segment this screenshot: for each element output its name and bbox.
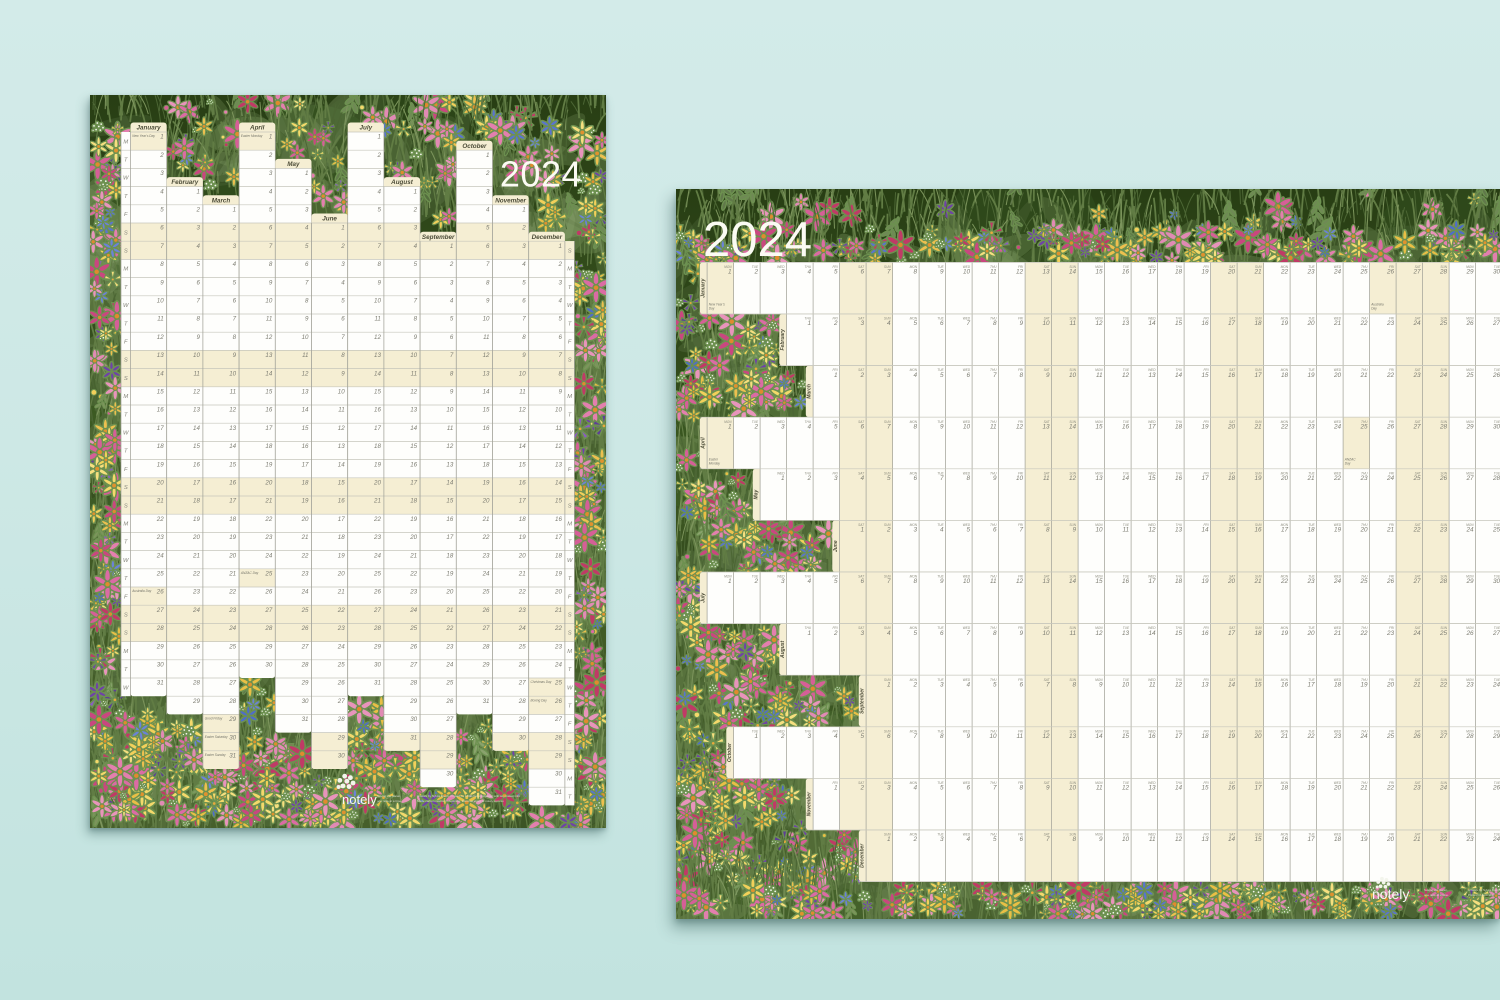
svg-text:24: 24 [482, 571, 490, 578]
svg-text:S: S [124, 613, 128, 619]
svg-text:17: 17 [1281, 527, 1289, 534]
svg-text:16: 16 [1228, 372, 1236, 379]
svg-text:10: 10 [446, 407, 453, 414]
svg-text:Saving the planet,: Saving the planet, [1424, 888, 1448, 892]
svg-text:W: W [567, 558, 573, 564]
svg-text:6: 6 [887, 733, 891, 740]
svg-text:April: April [701, 437, 707, 450]
svg-text:24: 24 [1439, 372, 1448, 379]
svg-text:3: 3 [887, 785, 891, 792]
svg-text:T: T [568, 285, 572, 291]
svg-text:17: 17 [1254, 785, 1262, 792]
svg-text:21: 21 [192, 552, 200, 559]
svg-text:W: W [123, 303, 129, 309]
svg-text:13: 13 [302, 389, 309, 396]
svg-text:11: 11 [266, 316, 272, 323]
svg-text:12: 12 [483, 352, 490, 359]
svg-text:7: 7 [305, 279, 309, 286]
svg-text:2: 2 [860, 372, 865, 379]
svg-text:1: 1 [341, 225, 344, 232]
svg-text:15: 15 [1095, 578, 1103, 585]
svg-text:16: 16 [193, 461, 200, 468]
svg-text:3: 3 [522, 243, 526, 250]
svg-text:20: 20 [1386, 681, 1395, 688]
svg-text:16: 16 [1122, 269, 1130, 276]
svg-text:2: 2 [340, 243, 345, 250]
svg-text:27: 27 [192, 662, 200, 669]
svg-text:M: M [123, 394, 128, 400]
svg-text:30: 30 [555, 771, 562, 778]
svg-text:4: 4 [967, 836, 971, 843]
svg-text:5: 5 [887, 475, 891, 482]
svg-text:6: 6 [305, 261, 309, 268]
svg-text:26: 26 [228, 662, 236, 669]
svg-text:8: 8 [341, 352, 345, 359]
svg-text:16: 16 [1148, 733, 1156, 740]
svg-text:9: 9 [1020, 320, 1024, 327]
svg-text:S: S [124, 249, 128, 255]
svg-text:15: 15 [410, 443, 417, 450]
svg-text:18: 18 [519, 516, 526, 523]
svg-text:21: 21 [1253, 423, 1262, 430]
svg-text:27: 27 [301, 643, 309, 650]
svg-text:11: 11 [990, 423, 997, 430]
svg-text:8: 8 [914, 269, 918, 276]
svg-text:10: 10 [338, 389, 345, 396]
svg-text:31: 31 [157, 680, 164, 687]
svg-text:7: 7 [887, 269, 891, 276]
svg-text:6: 6 [522, 298, 526, 305]
svg-text:26: 26 [1439, 475, 1448, 482]
svg-text:21: 21 [1253, 269, 1262, 276]
svg-text:2: 2 [485, 170, 490, 177]
svg-text:28: 28 [1439, 269, 1448, 276]
svg-text:2: 2 [913, 681, 918, 688]
svg-text:25: 25 [1412, 475, 1421, 482]
svg-text:5: 5 [486, 225, 490, 232]
svg-text:25: 25 [554, 680, 562, 687]
svg-text:22: 22 [554, 625, 562, 632]
svg-text:23: 23 [301, 571, 309, 578]
svg-text:5: 5 [414, 261, 418, 268]
svg-text:1: 1 [808, 320, 812, 327]
svg-text:23: 23 [1386, 630, 1395, 637]
svg-text:F: F [568, 340, 572, 346]
svg-text:S: S [124, 376, 128, 382]
svg-text:18: 18 [1334, 836, 1342, 843]
svg-text:19: 19 [338, 552, 345, 559]
svg-text:26: 26 [445, 698, 453, 705]
svg-text:16: 16 [302, 443, 309, 450]
svg-text:13: 13 [193, 407, 200, 414]
svg-text:11: 11 [1149, 681, 1156, 688]
svg-text:14: 14 [1228, 836, 1236, 843]
svg-text:7: 7 [967, 320, 971, 327]
svg-text:11: 11 [1016, 733, 1023, 740]
svg-text:7: 7 [196, 298, 200, 305]
svg-text:13: 13 [1201, 681, 1209, 688]
svg-text:20: 20 [409, 534, 417, 541]
svg-text:5: 5 [269, 207, 273, 214]
svg-text:12: 12 [555, 443, 562, 450]
svg-text:W: W [567, 685, 573, 691]
svg-text:18: 18 [1175, 578, 1183, 585]
svg-text:23: 23 [554, 643, 562, 650]
svg-text:26: 26 [337, 680, 345, 687]
svg-text:11: 11 [990, 578, 997, 585]
svg-text:1: 1 [808, 630, 812, 637]
svg-text:16: 16 [374, 407, 381, 414]
svg-text:S: S [568, 613, 572, 619]
svg-text:25: 25 [1439, 630, 1448, 637]
svg-text:August: August [780, 640, 786, 659]
svg-text:1: 1 [558, 243, 561, 250]
svg-text:27: 27 [156, 607, 164, 614]
svg-text:20: 20 [1333, 372, 1342, 379]
svg-text:11: 11 [338, 407, 344, 414]
svg-text:15: 15 [265, 389, 272, 396]
svg-text:15: 15 [302, 425, 309, 432]
svg-text:24: 24 [1412, 320, 1421, 327]
svg-text:4: 4 [887, 320, 891, 327]
svg-text:Artwork by Sylvia Booth. Print: Artwork by Sylvia Booth. Printed on 100%… [417, 794, 521, 798]
svg-text:9: 9 [196, 334, 200, 341]
svg-text:29: 29 [1465, 578, 1474, 585]
svg-text:27: 27 [1465, 475, 1474, 482]
svg-text:15: 15 [1201, 785, 1209, 792]
svg-text:9: 9 [1020, 630, 1024, 637]
svg-text:12: 12 [1175, 681, 1183, 688]
svg-text:23: 23 [1306, 578, 1315, 585]
svg-text:T: T [124, 449, 128, 455]
svg-text:18: 18 [338, 534, 345, 541]
svg-text:20: 20 [1227, 578, 1236, 585]
svg-text:1: 1 [233, 207, 236, 214]
svg-text:18: 18 [1307, 527, 1315, 534]
svg-text:8: 8 [1020, 372, 1024, 379]
svg-text:18: 18 [1281, 785, 1289, 792]
svg-text:18: 18 [1254, 630, 1262, 637]
svg-text:21: 21 [1412, 681, 1421, 688]
svg-text:25: 25 [1465, 785, 1474, 792]
svg-text:M: M [123, 267, 128, 273]
svg-text:9: 9 [940, 269, 944, 276]
svg-text:1: 1 [834, 372, 838, 379]
svg-text:29: 29 [264, 643, 272, 650]
svg-text:10: 10 [963, 423, 971, 430]
svg-text:25: 25 [1465, 372, 1474, 379]
svg-text:11: 11 [1096, 372, 1103, 379]
svg-text:2: 2 [754, 578, 759, 585]
svg-text:3: 3 [486, 188, 490, 195]
svg-text:5: 5 [196, 261, 200, 268]
svg-text:5: 5 [993, 836, 997, 843]
svg-text:24: 24 [192, 607, 200, 614]
svg-text:28: 28 [482, 643, 490, 650]
svg-text:W: W [567, 431, 573, 437]
svg-text:8: 8 [1020, 785, 1024, 792]
svg-text:3: 3 [781, 269, 785, 276]
svg-text:6: 6 [558, 334, 562, 341]
svg-text:11: 11 [302, 352, 308, 359]
svg-text:24: 24 [409, 607, 417, 614]
svg-text:T: T [568, 449, 572, 455]
svg-text:16: 16 [1122, 423, 1130, 430]
svg-text:20: 20 [1386, 836, 1395, 843]
svg-text:13: 13 [1042, 423, 1050, 430]
svg-text:8: 8 [558, 370, 562, 377]
svg-text:8: 8 [993, 630, 997, 637]
svg-text:17: 17 [519, 498, 526, 505]
svg-text:11: 11 [374, 316, 380, 323]
svg-text:12: 12 [265, 334, 272, 341]
svg-text:August: August [390, 179, 414, 186]
svg-text:19: 19 [1201, 269, 1209, 276]
svg-text:6: 6 [967, 372, 971, 379]
svg-text:13: 13 [338, 443, 345, 450]
svg-text:Made carbon neutral in Austral: Made carbon neutral in Australia. Discov… [417, 799, 504, 803]
svg-text:7: 7 [377, 243, 381, 250]
svg-text:1: 1 [887, 836, 891, 843]
svg-text:F: F [568, 722, 572, 728]
svg-text:23: 23 [1386, 320, 1395, 327]
svg-text:21: 21 [373, 498, 381, 505]
svg-text:1: 1 [728, 269, 732, 276]
svg-text:20: 20 [445, 589, 453, 596]
svg-text:26: 26 [1492, 372, 1500, 379]
svg-text:17: 17 [1254, 372, 1262, 379]
svg-text:13: 13 [265, 352, 272, 359]
svg-text:13: 13 [1042, 269, 1050, 276]
svg-text:17: 17 [1148, 578, 1156, 585]
svg-text:6: 6 [967, 785, 971, 792]
svg-text:16: 16 [1228, 785, 1236, 792]
svg-text:8: 8 [1073, 681, 1077, 688]
svg-text:Easter Sunday: Easter Sunday [205, 753, 226, 757]
svg-text:24: 24 [337, 643, 345, 650]
svg-text:22: 22 [482, 534, 490, 541]
svg-text:15: 15 [1254, 836, 1262, 843]
svg-text:16: 16 [229, 480, 236, 487]
svg-text:T: T [568, 704, 572, 710]
svg-text:31: 31 [302, 716, 309, 723]
svg-text:18: 18 [483, 461, 490, 468]
svg-text:23: 23 [156, 534, 164, 541]
svg-text:2: 2 [268, 152, 273, 159]
svg-text:9: 9 [1099, 681, 1103, 688]
svg-text:2: 2 [754, 423, 759, 430]
svg-text:S: S [124, 358, 128, 364]
svg-text:5: 5 [160, 207, 164, 214]
svg-text:26: 26 [1465, 320, 1474, 327]
svg-text:19: 19 [555, 571, 562, 578]
svg-text:18: 18 [193, 498, 200, 505]
svg-text:18: 18 [1281, 372, 1289, 379]
svg-text:6: 6 [1020, 681, 1024, 688]
svg-text:18: 18 [446, 552, 453, 559]
svg-text:13: 13 [410, 407, 417, 414]
svg-text:12: 12 [338, 425, 345, 432]
svg-text:16: 16 [1201, 320, 1209, 327]
svg-text:21: 21 [1253, 578, 1262, 585]
svg-text:October: October [727, 742, 733, 762]
svg-text:4: 4 [808, 423, 812, 430]
svg-text:20: 20 [337, 571, 345, 578]
svg-text:5: 5 [834, 423, 838, 430]
svg-text:notely: notely [342, 792, 377, 807]
svg-text:May: May [287, 161, 300, 168]
svg-text:18: 18 [1175, 269, 1183, 276]
svg-text:20: 20 [1359, 527, 1368, 534]
svg-text:30: 30 [519, 734, 526, 741]
svg-text:7: 7 [967, 630, 971, 637]
svg-text:24: 24 [554, 662, 562, 669]
svg-text:19: 19 [1360, 681, 1368, 688]
svg-text:8: 8 [1073, 836, 1077, 843]
svg-text:1: 1 [160, 134, 163, 141]
svg-text:6: 6 [861, 269, 865, 276]
svg-text:T: T [124, 158, 128, 164]
svg-text:14: 14 [1122, 475, 1130, 482]
svg-text:13: 13 [1148, 785, 1156, 792]
svg-text:22: 22 [192, 571, 200, 578]
svg-text:26: 26 [1386, 578, 1395, 585]
svg-text:7: 7 [993, 785, 997, 792]
svg-text:21: 21 [1359, 785, 1368, 792]
svg-text:20: 20 [482, 498, 490, 505]
svg-text:1: 1 [861, 527, 865, 534]
svg-text:11: 11 [519, 389, 525, 396]
svg-text:10: 10 [193, 352, 200, 359]
svg-text:1: 1 [486, 152, 489, 159]
svg-text:17: 17 [1148, 269, 1156, 276]
svg-text:20: 20 [156, 480, 164, 487]
svg-text:21: 21 [1280, 733, 1289, 740]
svg-text:29: 29 [482, 662, 490, 669]
svg-text:S: S [568, 358, 572, 364]
svg-text:November: November [807, 791, 813, 817]
svg-text:24: 24 [1492, 681, 1500, 688]
svg-text:30: 30 [1493, 269, 1500, 276]
svg-text:17: 17 [1175, 733, 1183, 740]
svg-text:8: 8 [914, 423, 918, 430]
svg-text:25: 25 [228, 643, 236, 650]
svg-text:April: April [249, 125, 265, 132]
svg-text:January: January [137, 125, 162, 132]
svg-text:2: 2 [413, 207, 418, 214]
svg-text:9: 9 [233, 352, 237, 359]
svg-text:29: 29 [445, 753, 453, 760]
svg-text:15: 15 [229, 461, 236, 468]
svg-text:9: 9 [940, 423, 944, 430]
svg-text:20: 20 [1306, 320, 1315, 327]
svg-text:9: 9 [940, 578, 944, 585]
svg-text:F: F [124, 594, 128, 600]
svg-text:4: 4 [558, 298, 562, 305]
svg-text:8: 8 [233, 334, 237, 341]
svg-text:Christmas Day: Christmas Day [531, 680, 552, 684]
svg-text:14: 14 [1069, 578, 1077, 585]
svg-text:17: 17 [1307, 681, 1315, 688]
svg-text:June: June [322, 216, 337, 223]
svg-text:21: 21 [301, 534, 309, 541]
svg-text:22: 22 [228, 589, 236, 596]
svg-text:28: 28 [445, 734, 453, 741]
svg-text:4: 4 [377, 188, 381, 195]
svg-text:23: 23 [264, 534, 272, 541]
svg-text:October: October [462, 143, 487, 150]
svg-text:17: 17 [338, 516, 345, 523]
svg-text:2: 2 [886, 527, 891, 534]
svg-text:10: 10 [410, 352, 417, 359]
svg-text:1: 1 [269, 134, 272, 141]
svg-text:15: 15 [1254, 681, 1262, 688]
svg-text:5: 5 [341, 298, 345, 305]
svg-text:7: 7 [1046, 836, 1050, 843]
svg-text:30: 30 [446, 771, 453, 778]
svg-text:21: 21 [264, 498, 272, 505]
svg-text:27: 27 [1492, 630, 1500, 637]
svg-text:9: 9 [1099, 836, 1103, 843]
svg-text:14: 14 [410, 425, 417, 432]
svg-text:16: 16 [519, 480, 526, 487]
svg-text:19: 19 [229, 534, 236, 541]
svg-text:13: 13 [446, 461, 453, 468]
svg-text:5: 5 [834, 578, 838, 585]
svg-text:7: 7 [450, 352, 454, 359]
svg-text:25: 25 [409, 625, 417, 632]
svg-text:30: 30 [302, 698, 309, 705]
svg-text:14: 14 [555, 480, 562, 487]
svg-text:9: 9 [486, 298, 490, 305]
svg-text:26: 26 [1465, 630, 1474, 637]
svg-text:December: December [532, 234, 563, 241]
svg-text:26: 26 [264, 589, 272, 596]
svg-text:22: 22 [445, 625, 453, 632]
svg-text:9: 9 [1046, 372, 1050, 379]
svg-text:11: 11 [157, 316, 163, 323]
svg-text:15: 15 [157, 389, 164, 396]
svg-text:23: 23 [1306, 269, 1315, 276]
svg-text:3: 3 [887, 372, 891, 379]
svg-text:13: 13 [1095, 475, 1103, 482]
svg-text:29: 29 [373, 643, 381, 650]
svg-text:14: 14 [374, 370, 381, 377]
svg-text:22: 22 [301, 552, 309, 559]
svg-text:23: 23 [192, 589, 200, 596]
svg-text:5: 5 [834, 269, 838, 276]
svg-text:2024: 2024 [703, 213, 812, 267]
svg-text:20: 20 [373, 480, 381, 487]
svg-text:30: 30 [410, 716, 417, 723]
svg-text:16: 16 [338, 498, 345, 505]
svg-text:26: 26 [409, 643, 417, 650]
svg-text:T: T [568, 321, 572, 327]
svg-text:2: 2 [833, 630, 838, 637]
svg-text:4: 4 [450, 298, 454, 305]
svg-text:26: 26 [156, 589, 164, 596]
svg-text:7: 7 [341, 334, 345, 341]
svg-text:12: 12 [1016, 423, 1024, 430]
svg-text:4: 4 [486, 207, 490, 214]
svg-text:Monday: Monday [709, 461, 721, 465]
svg-text:11: 11 [1043, 475, 1050, 482]
svg-text:March: March [807, 384, 813, 399]
svg-text:10: 10 [989, 733, 997, 740]
svg-text:18: 18 [157, 443, 164, 450]
svg-text:11: 11 [1096, 785, 1103, 792]
svg-text:26: 26 [1386, 423, 1395, 430]
